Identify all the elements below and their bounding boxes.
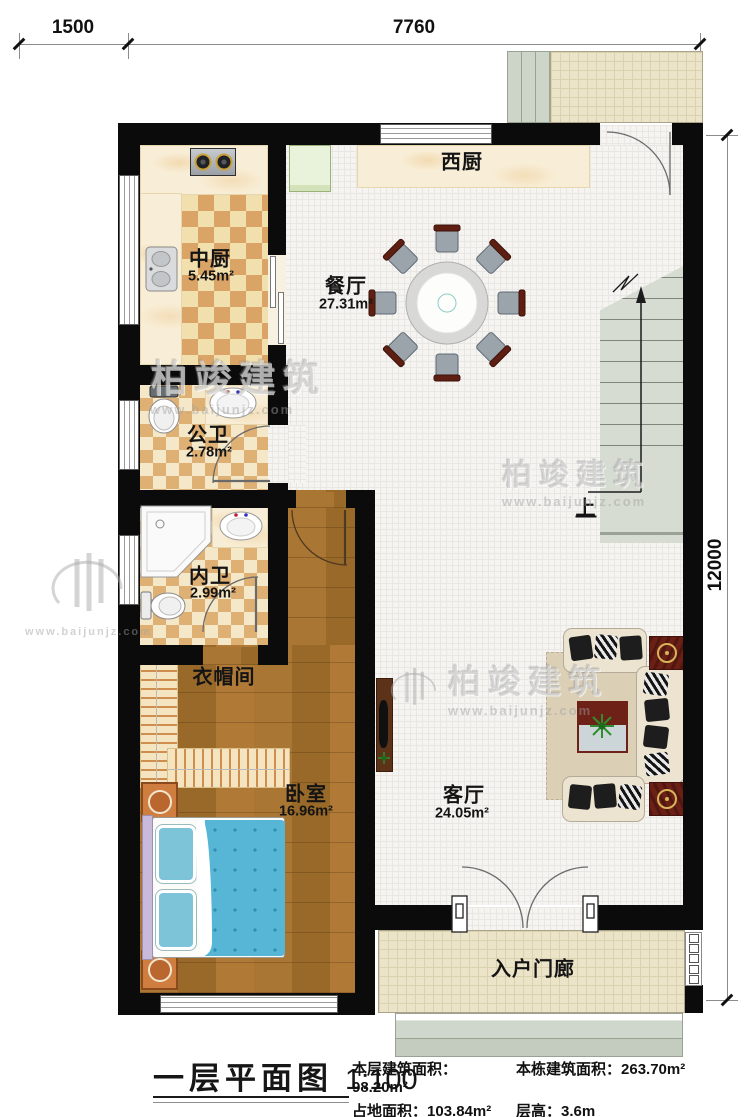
dim-guide [19,33,20,59]
title-underline [153,1096,349,1103]
stat-footprint: 占地面积：103.84m² [352,1100,512,1117]
floor-plan: 1500 7760 12000 [0,0,750,1117]
bed-blanket [205,820,285,956]
staircase [600,266,683,543]
stove [190,148,236,176]
room-label-cloakroom: 衣帽间 [193,667,256,690]
pillow [156,825,196,883]
room-area-bedroom: 16.96m² [279,804,333,821]
room-area-dining: 27.31m² [319,297,373,314]
dim-label-12000: 12000 [705,539,727,592]
right-dimension-line [727,135,728,1001]
window-bedroom-south [160,995,338,1013]
porch-side-windows [685,932,702,986]
wall-right [683,123,703,930]
wall-kitchen-south [140,365,288,385]
tv [379,700,388,748]
room-label-living: 客厅 [443,785,485,808]
room-label-west-kitchen: 西厨 [441,152,483,175]
stat-floor-height: 层高：3.6m [516,1100,685,1117]
stat-building-area: 本栋建筑面积：263.70m² [516,1058,685,1096]
window-private-bath-west [119,535,139,605]
dim-label-1500: 1500 [52,17,94,39]
patio-steps [507,51,550,123]
stair-base-edge [600,532,683,535]
patio-deck [550,51,703,123]
wall-living-south-b [592,905,703,930]
doorway-fill [460,907,592,930]
drawing-title-text: 一层平面图 [153,1053,333,1098]
room-area-private-bath: 2.99m² [190,586,236,603]
porch-steps [395,1013,683,1057]
wall-living-west [355,490,375,1015]
wall-bath-divider [118,490,268,508]
side-table [649,636,685,670]
coffee-table [577,701,628,753]
room-area-public-bath: 2.78m² [186,445,232,462]
room-label-porch: 入户门廊 [491,959,575,982]
wall-corridor-north-a [288,490,296,508]
doorway-fill [203,647,258,665]
floor-suite-corridor [288,490,355,648]
pillow [156,890,196,950]
dim-guide [706,135,738,136]
public-bath-counter [205,385,268,425]
stats-block: 本层建筑面积：98.20m² 本栋建筑面积：263.70m² 占地面积：103.… [352,1058,685,1117]
window-dining-north [380,124,492,144]
side-table [649,782,685,816]
doorway-fill [600,125,672,145]
sofa-bottom [562,776,645,822]
private-bath-counter [212,506,268,548]
sofa-top [563,628,647,673]
room-area-living: 24.05m² [435,806,489,823]
window-kitchen-west [119,175,139,325]
room-area-main-kitchen: 5.45m² [188,269,234,286]
wall-bath-right-b [268,483,288,645]
stat-floor-area: 本层建筑面积：98.20m² [352,1058,512,1096]
top-dimension-line [19,44,700,45]
doorway-fill [288,425,306,483]
dim-guide [706,1000,738,1001]
dim-label-7760: 7760 [393,17,435,39]
fridge [289,145,331,192]
sofa-main [636,666,685,784]
room-label-dining: 餐厅 [325,276,367,299]
kitchen-counter-left [140,193,182,365]
sliding-door-panel [270,256,276,308]
stairs-up-label: 上 [576,498,597,521]
dim-guide [128,33,129,59]
wall-bath-right [268,385,288,425]
wall-suite-north-b [258,645,288,665]
wall-living-south-a [375,905,460,930]
wall-suite-north-a [118,645,203,665]
wardrobe-bottom [167,748,290,788]
wall-top [118,123,600,145]
window-public-bath-west [119,400,139,470]
doorway-fill [296,492,346,508]
sliding-door-panel [278,292,284,344]
bed-headboard [142,815,153,960]
wall-kitchen-partition-a [268,145,286,255]
